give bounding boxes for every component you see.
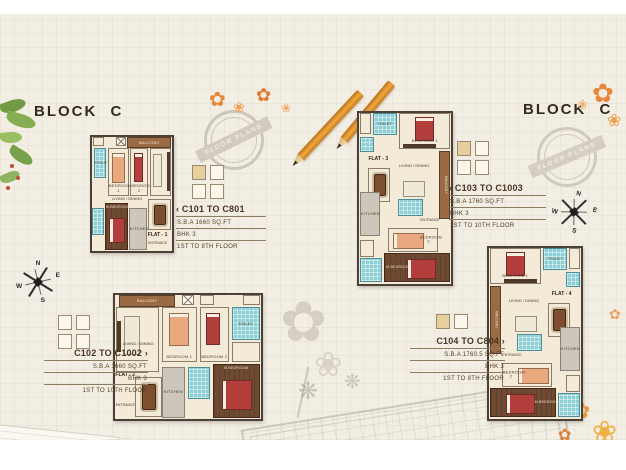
- flower-decoration: [592, 80, 614, 106]
- bedroom-1: BEDROOM 1: [108, 148, 129, 196]
- foyer: [569, 248, 580, 269]
- flower-decoration: [209, 90, 226, 110]
- kitchen: KITCHEN: [560, 327, 580, 371]
- shaft-box: [182, 295, 194, 305]
- toilet: TOILET: [232, 307, 260, 339]
- living-label: LIVING / DINING: [504, 299, 544, 303]
- unit-floors: 1ST TO 10TH FLOOR: [44, 385, 148, 396]
- bedroom-1: BEDROOM 1: [162, 307, 197, 362]
- dining-area: [148, 199, 171, 231]
- unit-info-c101: ‹ C101 TO C801 S.B.A 1660 SQ.FT BHK 3 1S…: [176, 204, 266, 252]
- unit-range: C104 TO C804: [436, 336, 499, 346]
- flower-decoration: [592, 418, 617, 440]
- compass-icon: N E S W: [547, 185, 600, 238]
- bedroom-1: BEDROOM 1: [490, 248, 541, 284]
- arrow-left-icon: ‹: [449, 183, 452, 193]
- entrance-label: ENTRANCE: [115, 404, 135, 408]
- arrow-left-icon: ‹: [176, 204, 179, 214]
- bath: [566, 272, 580, 287]
- unit-sba: S.B.A 1660 SQ.FT: [176, 217, 266, 229]
- bedroom-2: BEDROOM 2: [130, 148, 148, 196]
- toilet: TOILET: [373, 113, 397, 135]
- balcony: BALCONY: [119, 295, 174, 307]
- sketch-flower: [280, 294, 327, 350]
- bedroom-1: BEDROOM 1: [399, 113, 450, 149]
- kitchen: KITCHEN: [162, 367, 185, 418]
- unit-bhk: BHK 3: [449, 208, 546, 220]
- floor-plan-flat-3: TOILET BEDROOM 1 FLAT - 3 LIVING / DININ…: [357, 111, 453, 286]
- living-upper: [150, 148, 172, 196]
- living-label: LIVING / DINING: [108, 197, 146, 201]
- toilet-3: [558, 393, 580, 417]
- block-title-left: BLOCK C: [34, 103, 123, 120]
- bath: [360, 137, 374, 152]
- paper-canvas: BLOCK C BLOCK C FLOOR PLANS FLOOR PLANS: [0, 14, 626, 440]
- projection-box: [200, 295, 215, 305]
- master-bedroom: M.BEDROOM: [105, 203, 128, 250]
- core-legend-boxes: [192, 165, 224, 199]
- living-label: LIVING / DINING: [394, 164, 434, 168]
- drafting-paper-sketch: [0, 423, 120, 440]
- toilet: TOILET: [94, 148, 107, 178]
- unit-floors: 1ST TO 10TH FLOOR: [449, 220, 546, 231]
- sketch-palm: [344, 372, 361, 392]
- shaft-box: [116, 137, 126, 146]
- master-bedroom: M.BEDROOM: [384, 253, 450, 282]
- utility: [360, 240, 374, 257]
- unit-bhk: BHK 3: [410, 361, 505, 373]
- flower-decoration: [233, 100, 245, 114]
- toilet-2: [188, 367, 210, 399]
- core-legend-boxes: [457, 141, 489, 175]
- compass-icon: N E S W: [16, 260, 60, 304]
- master-bedroom: M.BEDROOM: [213, 364, 260, 417]
- flower-decoration: [281, 102, 291, 114]
- projection-box: [93, 137, 104, 146]
- unit-bhk: BHK 3: [176, 229, 266, 241]
- flower-decoration: [609, 307, 621, 321]
- bedroom-2: BEDROOM 2: [200, 307, 229, 362]
- toilet-2: [398, 199, 424, 216]
- foyer: [360, 113, 371, 134]
- floor-plans-stamp: FLOOR PLANS: [533, 123, 602, 192]
- core-legend-boxes: [436, 314, 468, 329]
- floor-plan-flat-1: BALCONY TOILET BEDROOM 1 BEDROOM 2 LIVIN…: [90, 135, 174, 253]
- unit-info-c104: C104 TO C804 › S.B.A 1760.5 SQ.FT BHK 3 …: [410, 336, 505, 384]
- bedroom-2: BEDROOM 2: [388, 228, 438, 252]
- floor-plan-flat-4: TOILET BEDROOM 1 FLAT - 4 BALCONY LIVING…: [487, 246, 583, 421]
- brochure-page: BLOCK C BLOCK C FLOOR PLANS FLOOR PLANS: [0, 0, 626, 470]
- balcony: BALCONY: [127, 137, 171, 148]
- flat-label: FLAT - 3: [364, 157, 393, 163]
- toilet-3: [360, 258, 382, 282]
- unit-bhk: BHK 3: [44, 373, 148, 385]
- unit-floors: 1ST TO 8TH FLOOR: [410, 373, 505, 384]
- flat-label: FLAT - 4: [546, 292, 577, 298]
- projection-box: [243, 295, 259, 305]
- master-bedroom: M.BEDROOM: [490, 388, 556, 417]
- arrow-right-icon: ›: [502, 336, 505, 346]
- toilet-2: [517, 334, 543, 351]
- flower-decoration: [607, 112, 621, 129]
- unit-sba: S.B.A 1760.5 SQ.FT: [410, 349, 505, 361]
- sketch-flower: [314, 348, 343, 382]
- toilet-2: [92, 208, 104, 235]
- bedroom-2: BEDROOM 2: [502, 363, 552, 387]
- entrance-label: ENTRANCE: [143, 242, 172, 246]
- utility: [566, 375, 580, 392]
- flat-label: FLAT - 1: [143, 233, 172, 239]
- unit-sba: S.B.A 1660 SQ.FT: [44, 361, 148, 373]
- sketch-palm: [298, 380, 318, 404]
- core-legend-boxes: [58, 315, 90, 349]
- flower-decoration: [256, 86, 271, 104]
- unit-range: C101 TO C801: [182, 204, 245, 214]
- arrow-right-icon: ›: [145, 348, 148, 358]
- unit-sba: S.B.A 1760 SQ.FT: [449, 196, 546, 208]
- dressing-room: [232, 342, 260, 362]
- living-label: LIVING / DINING: [119, 342, 157, 346]
- unit-range: C103 TO C1003: [455, 183, 523, 193]
- unit-info-c102: C102 TO C1002 › S.B.A 1660 SQ.FT BHK 3 1…: [44, 348, 148, 396]
- unit-info-c103: ‹ C103 TO C1003 S.B.A 1760 SQ.FT BHK 3 1…: [449, 183, 546, 231]
- unit-range: C102 TO C1002: [74, 348, 142, 358]
- entrance-label: ENTRANCE: [412, 219, 447, 223]
- kitchen: KITCHEN: [360, 192, 380, 236]
- flower-decoration: [577, 98, 588, 111]
- toilet: TOILET: [543, 248, 567, 270]
- unit-floors: 1ST TO 8TH FLOOR: [176, 241, 266, 252]
